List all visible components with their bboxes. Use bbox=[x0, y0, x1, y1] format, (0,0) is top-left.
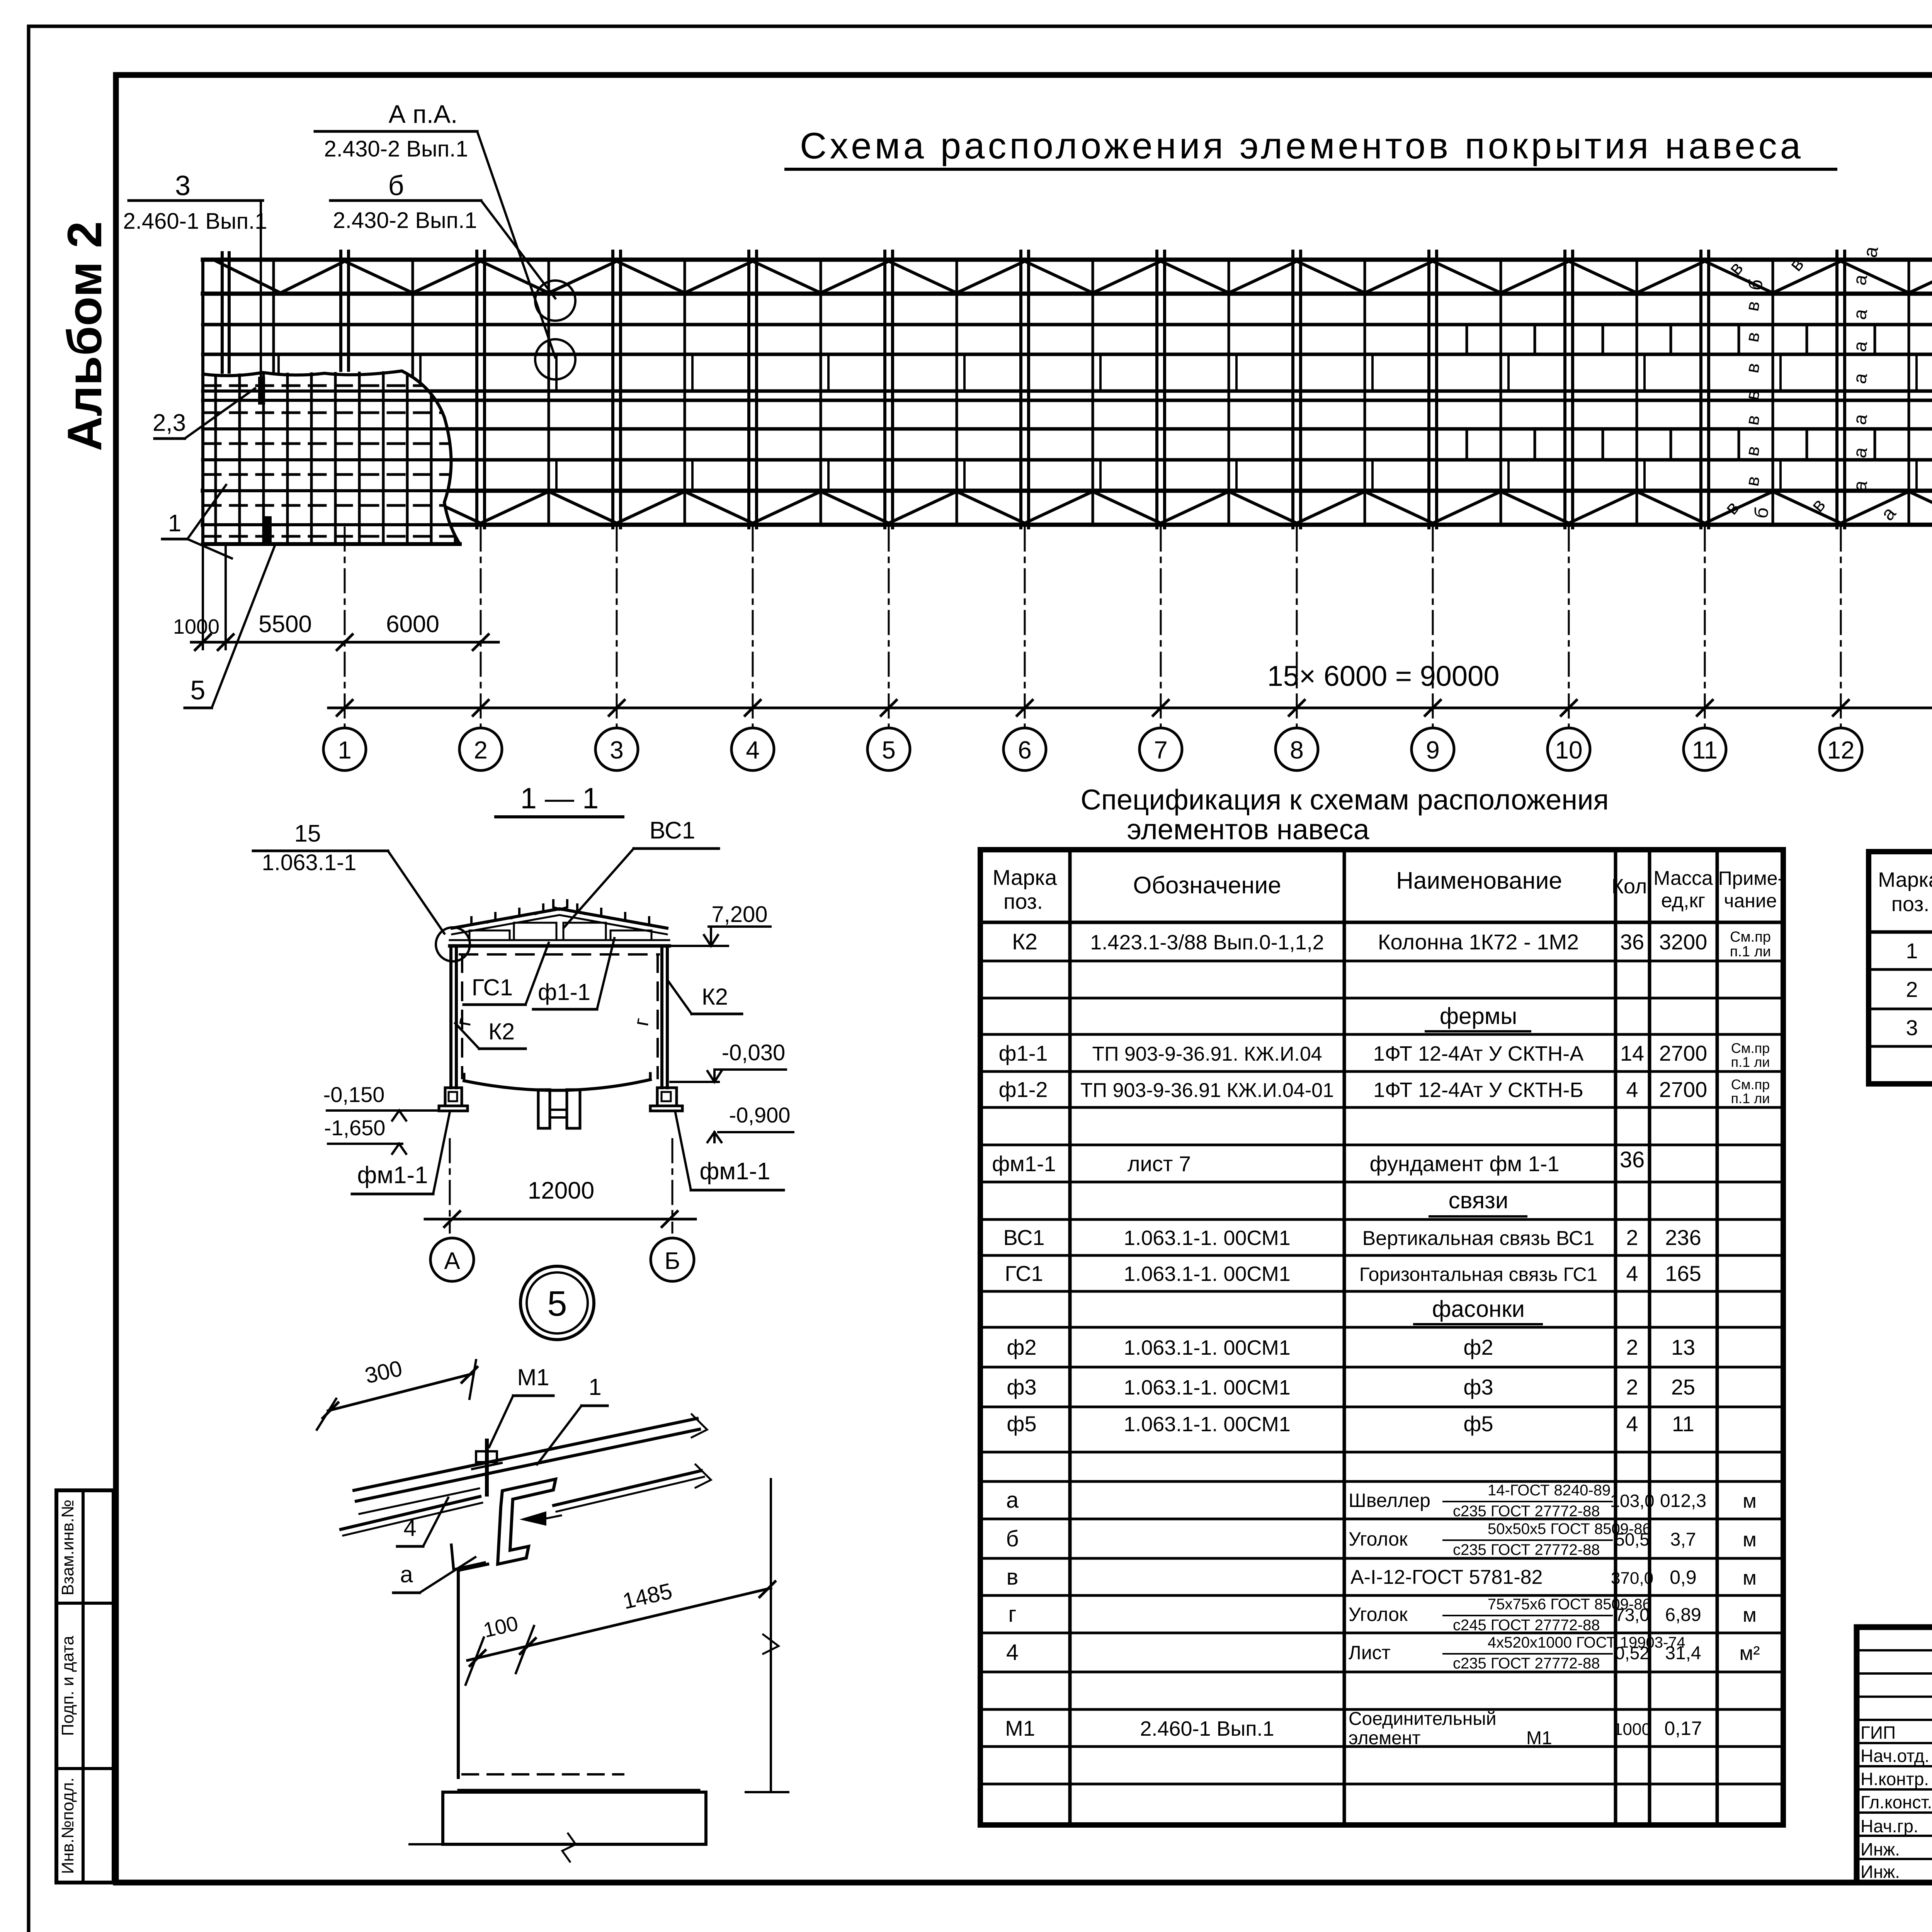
svg-text:370,0: 370,0 bbox=[1611, 1569, 1653, 1588]
svg-text:2.460-1 Вып.1: 2.460-1 Вып.1 bbox=[123, 209, 267, 234]
svg-text:См.пр: См.пр bbox=[1731, 1077, 1770, 1092]
svg-text:9: 9 bbox=[1426, 736, 1440, 764]
svg-text:10: 10 bbox=[1555, 736, 1582, 764]
svg-text:4: 4 bbox=[403, 1515, 416, 1541]
svg-text:г: г bbox=[1008, 1602, 1016, 1627]
svg-text:в: в bbox=[1007, 1565, 1019, 1590]
svg-text:6: 6 bbox=[1018, 736, 1032, 764]
svg-text:1: 1 bbox=[168, 510, 181, 537]
svg-text:3,7: 3,7 bbox=[1670, 1529, 1696, 1550]
svg-text:Наименование: Наименование bbox=[1396, 867, 1562, 894]
svg-text:4х520х1000 ГОСТ 19903-74: 4х520х1000 ГОСТ 19903-74 bbox=[1488, 1634, 1685, 1651]
svg-text:Б: Б bbox=[665, 1248, 680, 1274]
svg-text:фермы: фермы bbox=[1440, 1003, 1517, 1029]
svg-text:Нач.отд.: Нач.отд. bbox=[1861, 1746, 1929, 1766]
svg-text:4: 4 bbox=[1626, 1412, 1638, 1436]
svg-text:1ФТ 12-4Ат У СКТН-Б: 1ФТ 12-4Ат У СКТН-Б bbox=[1373, 1078, 1583, 1102]
svg-text:поз.: поз. bbox=[1891, 893, 1929, 916]
svg-text:36: 36 bbox=[1620, 930, 1644, 954]
svg-text:11: 11 bbox=[1672, 1412, 1694, 1436]
svg-text:-0,030: -0,030 bbox=[722, 1040, 785, 1065]
svg-text:Обозначение: Обозначение bbox=[1133, 872, 1281, 899]
svg-text:ф1-1: ф1-1 bbox=[538, 979, 590, 1005]
svg-text:фм1-1: фм1-1 bbox=[992, 1151, 1056, 1176]
svg-text:См.пр: См.пр bbox=[1731, 1040, 1770, 1056]
svg-text:5500: 5500 bbox=[259, 611, 312, 638]
svg-text:14: 14 bbox=[1620, 1041, 1644, 1065]
svg-text:ф2: ф2 bbox=[1463, 1335, 1493, 1359]
svg-text:ф5: ф5 bbox=[1463, 1412, 1493, 1436]
svg-text:А п.А.: А п.А. bbox=[389, 100, 458, 128]
svg-text:а: а bbox=[1006, 1488, 1019, 1513]
svg-text:4: 4 bbox=[1006, 1640, 1019, 1665]
svg-text:элементов навеса: элементов навеса bbox=[1127, 813, 1369, 845]
svg-text:фм1-1: фм1-1 bbox=[699, 1158, 770, 1185]
svg-text:б: б bbox=[388, 170, 404, 201]
svg-text:ГС1: ГС1 bbox=[1005, 1261, 1043, 1286]
svg-text:2: 2 bbox=[474, 736, 488, 764]
svg-text:См.пр: См.пр bbox=[1730, 929, 1771, 945]
svg-text:п.1 ли: п.1 ли bbox=[1730, 944, 1771, 960]
svg-text:Уголок: Уголок bbox=[1349, 1604, 1408, 1625]
svg-text:2.460-1 Вып.1: 2.460-1 Вып.1 bbox=[1140, 1717, 1274, 1740]
svg-text:1: 1 bbox=[338, 736, 352, 764]
svg-text:1 — 1: 1 — 1 bbox=[520, 782, 599, 815]
svg-text:13: 13 bbox=[1671, 1335, 1695, 1359]
svg-text:б: б bbox=[1006, 1526, 1019, 1551]
svg-text:-0,150: -0,150 bbox=[323, 1082, 385, 1107]
svg-text:-0,900: -0,900 bbox=[729, 1103, 791, 1127]
svg-text:Подп. и дата: Подп. и дата bbox=[58, 1636, 77, 1736]
svg-text:ф3: ф3 bbox=[1463, 1375, 1493, 1399]
svg-text:ТП 903-9-36.91. КЖ.И.04: ТП 903-9-36.91. КЖ.И.04 bbox=[1092, 1043, 1322, 1065]
svg-text:4: 4 bbox=[1626, 1261, 1638, 1286]
svg-text:-1,650: -1,650 bbox=[324, 1116, 386, 1140]
svg-text:Приме-: Приме- bbox=[1718, 867, 1784, 889]
svg-text:3: 3 bbox=[610, 736, 624, 764]
svg-text:Вертикальная связь ВС1: Вертикальная связь ВС1 bbox=[1362, 1227, 1595, 1250]
svg-text:12000: 12000 bbox=[528, 1177, 594, 1204]
svg-text:2: 2 bbox=[1626, 1375, 1638, 1399]
svg-text:31,4: 31,4 bbox=[1665, 1643, 1701, 1663]
svg-text:Инж.: Инж. bbox=[1861, 1839, 1900, 1859]
svg-text:ф1-1: ф1-1 bbox=[998, 1041, 1048, 1065]
svg-text:ф3: ф3 bbox=[1007, 1375, 1036, 1399]
svg-text:Гл.конст.: Гл.конст. bbox=[1861, 1792, 1932, 1812]
svg-text:с245 ГОСТ 27772-88: с245 ГОСТ 27772-88 bbox=[1453, 1617, 1600, 1634]
svg-text:0,17: 0,17 bbox=[1664, 1718, 1702, 1739]
svg-text:4: 4 bbox=[746, 736, 760, 764]
svg-text:А: А bbox=[444, 1248, 460, 1274]
svg-text:1.063.1-1. 00СМ1: 1.063.1-1. 00СМ1 bbox=[1124, 1376, 1291, 1399]
svg-text:73,0: 73,0 bbox=[1615, 1605, 1650, 1625]
svg-text:К2: К2 bbox=[702, 984, 728, 1010]
svg-text:Масса: Масса bbox=[1653, 867, 1713, 889]
svg-text:5: 5 bbox=[882, 736, 896, 764]
svg-text:а: а bbox=[400, 1561, 413, 1587]
svg-text:ВС1: ВС1 bbox=[650, 817, 696, 844]
svg-text:8: 8 bbox=[1290, 736, 1304, 764]
svg-text:Инж.: Инж. bbox=[1861, 1862, 1900, 1882]
svg-text:5: 5 bbox=[547, 1284, 567, 1323]
svg-text:Марка: Марка bbox=[993, 865, 1057, 889]
svg-text:элемент: элемент bbox=[1349, 1728, 1420, 1748]
svg-text:Инв.№подл.: Инв.№подл. bbox=[58, 1777, 77, 1874]
svg-text:2700: 2700 bbox=[1659, 1077, 1708, 1102]
svg-text:поз.: поз. bbox=[1003, 889, 1043, 913]
svg-text:2: 2 bbox=[1906, 977, 1918, 1002]
svg-text:Горизонтальная связь ГС1: Горизонтальная связь ГС1 bbox=[1359, 1264, 1598, 1285]
svg-text:лист 7: лист 7 bbox=[1128, 1151, 1191, 1176]
svg-text:6000: 6000 bbox=[386, 611, 439, 638]
svg-text:м²: м² bbox=[1739, 1642, 1760, 1665]
svg-text:Марка,: Марка, bbox=[1878, 868, 1932, 891]
svg-text:2: 2 bbox=[1626, 1225, 1638, 1250]
svg-text:фундамент фм 1-1: фундамент фм 1-1 bbox=[1369, 1151, 1559, 1176]
svg-text:3: 3 bbox=[175, 170, 190, 201]
svg-text:чание: чание bbox=[1724, 890, 1777, 912]
svg-text:36: 36 bbox=[1620, 1147, 1645, 1172]
svg-text:1ФТ 12-4Ат У СКТН-А: 1ФТ 12-4Ат У СКТН-А bbox=[1373, 1042, 1583, 1065]
svg-text:с235 ГОСТ 27772-88: с235 ГОСТ 27772-88 bbox=[1453, 1503, 1600, 1520]
svg-text:Швеллер: Швеллер bbox=[1349, 1490, 1430, 1511]
svg-text:п.1 ли: п.1 ли bbox=[1731, 1090, 1770, 1106]
svg-text:4: 4 bbox=[1626, 1077, 1638, 1102]
svg-text:1.423.1-3/88 Вып.0-1,1,2: 1.423.1-3/88 Вып.0-1,1,2 bbox=[1090, 931, 1324, 954]
svg-text:Соединительный: Соединительный bbox=[1349, 1709, 1497, 1729]
svg-text:50,5: 50,5 bbox=[1615, 1529, 1650, 1549]
svg-text:К2: К2 bbox=[488, 1019, 515, 1044]
svg-text:с235 ГОСТ 27772-88: с235 ГОСТ 27772-88 bbox=[1453, 1541, 1600, 1558]
svg-text:М1: М1 bbox=[1005, 1716, 1035, 1740]
svg-text:1: 1 bbox=[1906, 939, 1918, 963]
svg-text:фм1-1: фм1-1 bbox=[357, 1162, 428, 1189]
svg-text:7: 7 bbox=[1154, 736, 1168, 764]
svg-text:Лист: Лист bbox=[1349, 1642, 1391, 1663]
svg-text:Взам.инв.№: Взам.инв.№ bbox=[58, 1500, 77, 1595]
svg-text:2: 2 bbox=[1626, 1335, 1638, 1359]
svg-text:15× 6000 = 90000: 15× 6000 = 90000 bbox=[1267, 660, 1500, 692]
svg-text:ед,кг: ед,кг bbox=[1661, 889, 1705, 912]
svg-text:ГС1: ГС1 bbox=[472, 975, 513, 1000]
svg-text:м: м bbox=[1743, 1604, 1757, 1626]
svg-text:25: 25 bbox=[1671, 1375, 1695, 1399]
svg-text:связи: связи bbox=[1449, 1187, 1509, 1213]
svg-text:М1: М1 bbox=[1526, 1728, 1552, 1748]
svg-text:103,0: 103,0 bbox=[1610, 1491, 1654, 1511]
svg-text:14-ГОСТ 8240-89: 14-ГОСТ 8240-89 bbox=[1488, 1482, 1611, 1499]
svg-text:1.063.1-1. 00СМ1: 1.063.1-1. 00СМ1 bbox=[1124, 1336, 1291, 1359]
svg-text:Колонна 1К72 - 1М2: Колонна 1К72 - 1М2 bbox=[1378, 930, 1579, 954]
svg-text:ВС1: ВС1 bbox=[1003, 1225, 1044, 1250]
svg-text:К2: К2 bbox=[1012, 929, 1037, 954]
svg-text:Н.контр.: Н.контр. bbox=[1861, 1769, 1929, 1789]
svg-text:Альбом 2: Альбом 2 bbox=[58, 221, 112, 451]
svg-text:15: 15 bbox=[294, 820, 321, 847]
svg-text:3: 3 bbox=[1906, 1015, 1918, 1040]
svg-text:ф5: ф5 bbox=[1007, 1412, 1036, 1436]
svg-text:с235 ГОСТ 27772-88: с235 ГОСТ 27772-88 bbox=[1453, 1655, 1600, 1672]
svg-text:5: 5 bbox=[190, 675, 206, 705]
svg-text:2.430-2 Вып.1: 2.430-2 Вып.1 bbox=[333, 208, 477, 233]
svg-text:3200: 3200 bbox=[1659, 930, 1708, 954]
svg-text:1.063.1-1. 00СМ1: 1.063.1-1. 00СМ1 bbox=[1124, 1413, 1291, 1436]
svg-text:м: м bbox=[1743, 1490, 1757, 1512]
svg-text:1000: 1000 bbox=[1613, 1720, 1651, 1739]
svg-text:0,52: 0,52 bbox=[1615, 1643, 1650, 1663]
svg-text:ТП 903-9-36.91 КЖ.И.04-01: ТП 903-9-36.91 КЖ.И.04-01 bbox=[1080, 1079, 1334, 1102]
svg-text:012,3: 012,3 bbox=[1660, 1491, 1706, 1511]
svg-text:165: 165 bbox=[1665, 1261, 1701, 1286]
svg-text:236: 236 bbox=[1665, 1225, 1701, 1250]
svg-text:11: 11 bbox=[1692, 736, 1718, 764]
svg-text:м: м bbox=[1743, 1567, 1757, 1589]
svg-text:1000: 1000 bbox=[173, 615, 219, 638]
svg-text:Спецификация к схемам распо: Спецификация к схемам расположения bbox=[1080, 784, 1609, 816]
svg-text:Уголок: Уголок bbox=[1349, 1528, 1408, 1550]
svg-text:1: 1 bbox=[588, 1374, 601, 1400]
svg-text:Нач.гр.: Нач.гр. bbox=[1861, 1816, 1918, 1836]
svg-text:м: м bbox=[1743, 1529, 1757, 1551]
svg-text:1.063.1-1. 00СМ1: 1.063.1-1. 00СМ1 bbox=[1124, 1226, 1291, 1250]
svg-text:п.1 ли: п.1 ли bbox=[1731, 1054, 1770, 1070]
svg-text:2.430-2 Вып.1: 2.430-2 Вып.1 bbox=[324, 136, 468, 162]
svg-text:1.063.1-1: 1.063.1-1 bbox=[262, 850, 356, 875]
svg-text:2700: 2700 bbox=[1659, 1041, 1708, 1065]
svg-text:6,89: 6,89 bbox=[1665, 1605, 1701, 1625]
svg-text:7,200: 7,200 bbox=[711, 902, 767, 927]
svg-text:А-I-12-ГОСТ 5781-82: А-I-12-ГОСТ 5781-82 bbox=[1350, 1566, 1543, 1588]
svg-text:ф2: ф2 bbox=[1007, 1335, 1036, 1359]
svg-text:ф1-2: ф1-2 bbox=[998, 1077, 1048, 1102]
svg-text:2,3: 2,3 bbox=[153, 410, 186, 436]
svg-text:ГИП: ГИП bbox=[1861, 1723, 1896, 1743]
svg-text:фасонки: фасонки bbox=[1432, 1296, 1525, 1322]
svg-text:Кол.: Кол. bbox=[1612, 875, 1653, 898]
svg-text:12: 12 bbox=[1827, 736, 1854, 764]
svg-text:1.063.1-1. 00СМ1: 1.063.1-1. 00СМ1 bbox=[1124, 1262, 1291, 1286]
svg-text:М1: М1 bbox=[517, 1364, 549, 1390]
svg-text:0,9: 0,9 bbox=[1670, 1566, 1697, 1588]
